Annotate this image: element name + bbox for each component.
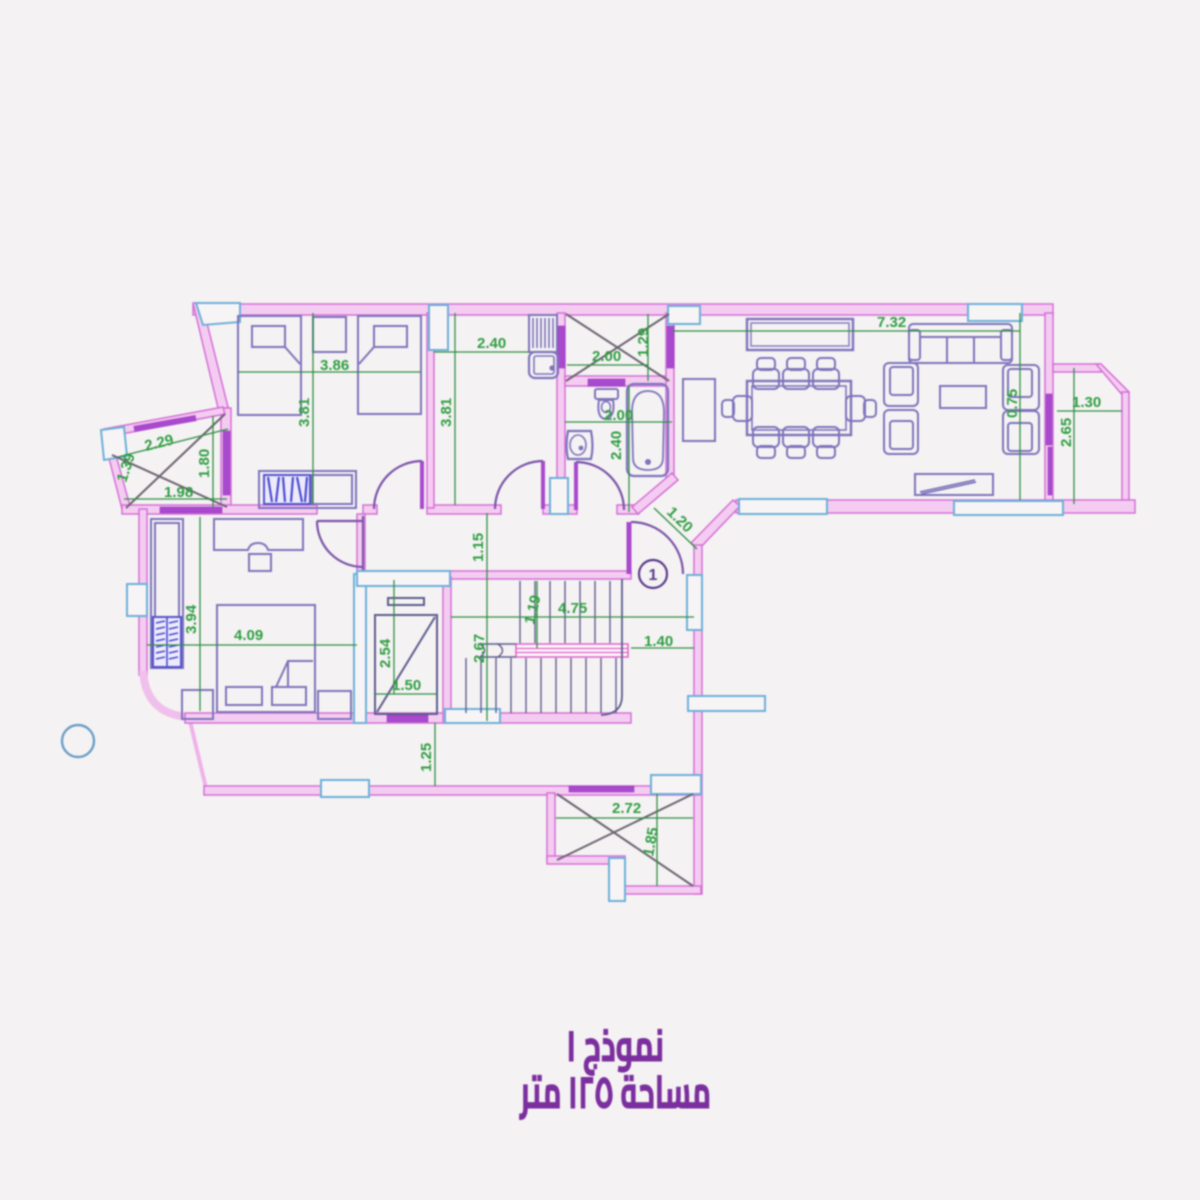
svg-text:2.40: 2.40 (608, 431, 625, 460)
svg-text:1.30: 1.30 (1072, 394, 1101, 411)
svg-text:1.98: 1.98 (164, 484, 193, 501)
svg-text:1.15: 1.15 (470, 533, 487, 562)
svg-text:3.81: 3.81 (438, 398, 455, 427)
svg-text:1.29: 1.29 (635, 328, 652, 357)
svg-text:2.54: 2.54 (377, 638, 394, 668)
svg-text:1.80: 1.80 (196, 449, 213, 478)
svg-text:2.00: 2.00 (592, 348, 621, 365)
svg-text:2.67: 2.67 (471, 634, 488, 663)
svg-text:1.40: 1.40 (644, 633, 673, 650)
svg-text:2.72: 2.72 (612, 800, 641, 817)
svg-text:4.75: 4.75 (558, 600, 587, 617)
svg-text:2.40: 2.40 (477, 335, 506, 352)
svg-text:3.94: 3.94 (183, 604, 200, 634)
svg-text:4.09: 4.09 (234, 627, 263, 644)
svg-text:3.81: 3.81 (296, 398, 313, 427)
svg-text:3.86: 3.86 (320, 357, 349, 374)
svg-text:7.32: 7.32 (877, 314, 906, 331)
svg-text:2.65: 2.65 (1058, 418, 1075, 447)
svg-text:1: 1 (649, 567, 658, 584)
svg-text:0.75: 0.75 (1004, 389, 1021, 418)
svg-text:1.50: 1.50 (392, 677, 421, 694)
svg-text:1.25: 1.25 (418, 743, 435, 772)
